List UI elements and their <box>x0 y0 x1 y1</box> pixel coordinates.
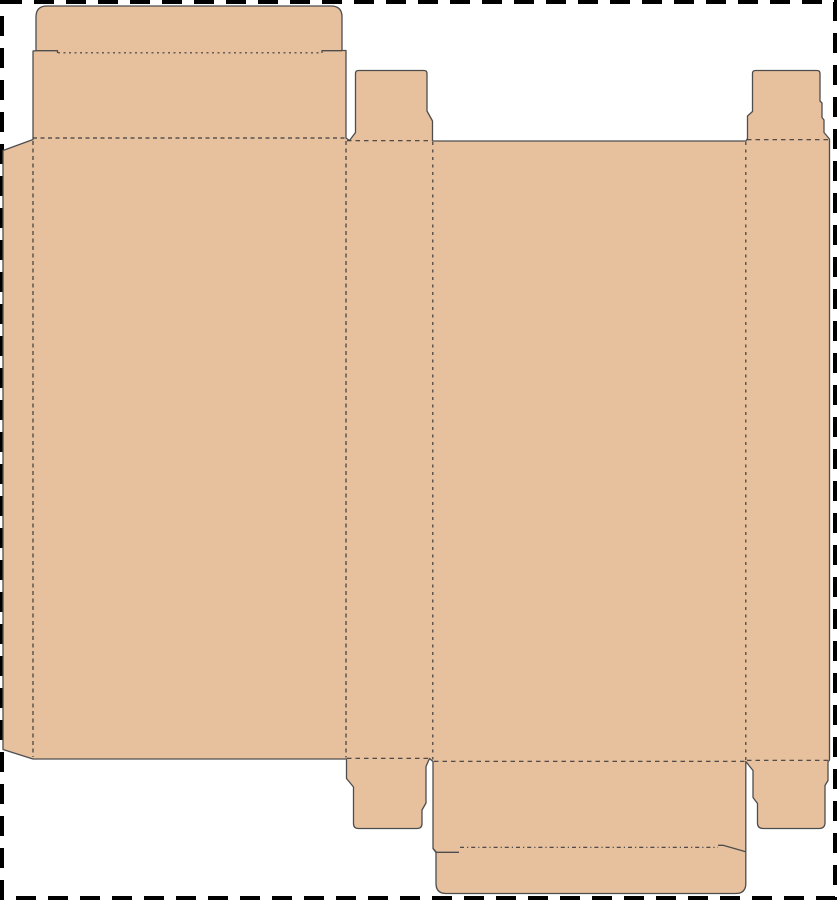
dieline-canvas <box>0 0 837 900</box>
box-blank-outline <box>3 6 830 894</box>
dieline-drawing <box>0 0 837 900</box>
